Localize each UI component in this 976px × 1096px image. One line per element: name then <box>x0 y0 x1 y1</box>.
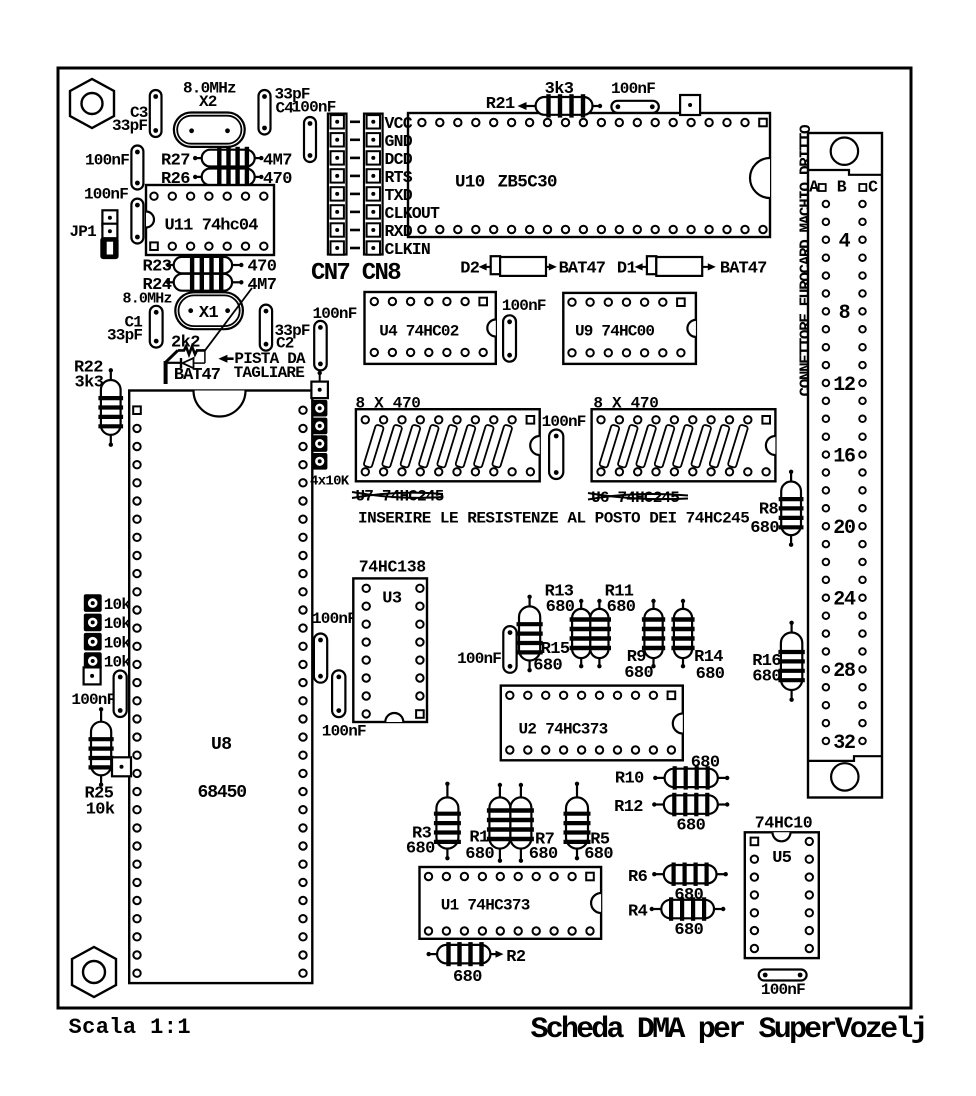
svg-text:R21: R21 <box>486 95 515 114</box>
svg-text:U8: U8 <box>211 735 231 755</box>
svg-text:BAT47: BAT47 <box>174 366 221 385</box>
svg-text:16: 16 <box>833 445 855 468</box>
svg-text:R23: R23 <box>143 258 172 277</box>
svg-text:CN7 CN8: CN7 CN8 <box>311 260 401 287</box>
svg-text:U10: U10 <box>455 173 485 193</box>
svg-text:TAGLIARE: TAGLIARE <box>234 364 305 382</box>
svg-text:D1: D1 <box>617 259 637 278</box>
svg-text:680: 680 <box>607 598 636 617</box>
svg-text:3k3: 3k3 <box>75 374 104 393</box>
svg-text:470: 470 <box>248 258 277 277</box>
svg-text:BAT47: BAT47 <box>559 259 606 278</box>
svg-text:ZB5C30: ZB5C30 <box>498 173 558 193</box>
svg-text:10k: 10k <box>104 654 132 672</box>
svg-text:8: 8 <box>839 302 850 325</box>
svg-text:U3: U3 <box>382 590 402 609</box>
svg-text:100nF: 100nF <box>542 413 586 431</box>
svg-text:GND: GND <box>385 132 413 151</box>
svg-text:20: 20 <box>833 517 855 540</box>
svg-text:100nF: 100nF <box>761 981 805 999</box>
svg-text:RTS: RTS <box>385 168 413 187</box>
svg-text:680: 680 <box>676 817 705 836</box>
svg-text:680: 680 <box>750 519 779 538</box>
svg-text:B: B <box>837 178 847 197</box>
svg-text:28: 28 <box>833 660 855 683</box>
svg-text:INSERIRE LE RESISTENZE AL POST: INSERIRE LE RESISTENZE AL POSTO DEI 74HC… <box>358 510 749 528</box>
svg-text:C: C <box>868 178 878 197</box>
svg-text:X1: X1 <box>199 304 219 323</box>
svg-text:24: 24 <box>833 589 856 612</box>
svg-text:680: 680 <box>465 845 494 864</box>
svg-text:12: 12 <box>833 374 855 397</box>
svg-text:100nF: 100nF <box>611 80 655 98</box>
svg-text:680: 680 <box>453 968 482 987</box>
svg-text:680: 680 <box>696 665 725 684</box>
svg-text:100nF: 100nF <box>84 186 128 204</box>
svg-text:Scheda DMA per SuperVozelj: Scheda DMA per SuperVozelj <box>531 1013 926 1047</box>
svg-text:RXD: RXD <box>385 222 413 241</box>
svg-text:33pF: 33pF <box>112 117 147 135</box>
svg-text:A: A <box>809 178 819 197</box>
svg-text:BAT47: BAT47 <box>720 259 767 278</box>
svg-text:U1 74HC373: U1 74HC373 <box>441 897 530 915</box>
svg-text:R27: R27 <box>161 152 190 171</box>
svg-text:DCD: DCD <box>385 150 413 169</box>
svg-text:U4 74HC02: U4 74HC02 <box>379 323 458 341</box>
svg-text:32: 32 <box>833 732 855 755</box>
svg-text:10k: 10k <box>104 634 132 652</box>
svg-text:Scala 1:1: Scala 1:1 <box>69 1015 191 1040</box>
svg-text:TXD: TXD <box>385 186 413 205</box>
svg-text:680: 680 <box>406 840 435 859</box>
svg-text:680: 680 <box>674 921 703 940</box>
svg-text:10k: 10k <box>104 615 132 633</box>
svg-text:4x10K: 4x10K <box>310 474 350 490</box>
svg-text:100nF: 100nF <box>322 723 366 741</box>
svg-text:100nF: 100nF <box>457 650 501 668</box>
svg-text:680: 680 <box>529 845 558 864</box>
svg-text:680: 680 <box>624 664 653 683</box>
svg-text:68450: 68450 <box>198 783 247 803</box>
svg-text:4M7: 4M7 <box>248 276 277 295</box>
svg-text:680: 680 <box>752 668 781 687</box>
svg-text:74HC10: 74HC10 <box>755 814 813 833</box>
svg-text:100nF: 100nF <box>71 691 115 709</box>
svg-text:4: 4 <box>839 231 851 254</box>
svg-text:U5: U5 <box>772 849 792 868</box>
svg-text:8.0MHz: 8.0MHz <box>123 290 172 307</box>
svg-text:100nF: 100nF <box>312 610 356 628</box>
svg-text:680: 680 <box>546 598 575 617</box>
svg-text:R8: R8 <box>759 501 779 520</box>
svg-text:10k: 10k <box>86 801 115 820</box>
svg-text:R4: R4 <box>628 903 648 922</box>
svg-text:100nF: 100nF <box>85 152 129 170</box>
svg-text:R2: R2 <box>506 948 526 967</box>
svg-text:CLKOUT: CLKOUT <box>385 204 441 223</box>
svg-text:4M7: 4M7 <box>263 152 292 171</box>
svg-text:JP1: JP1 <box>70 223 97 241</box>
svg-text:CLKIN: CLKIN <box>385 240 431 259</box>
svg-text:R6: R6 <box>628 868 648 887</box>
svg-text:100nF: 100nF <box>502 297 546 315</box>
svg-text:R12: R12 <box>614 798 643 817</box>
svg-text:U9 74HC00: U9 74HC00 <box>575 323 654 341</box>
svg-text:R10: R10 <box>615 770 644 789</box>
svg-text:10k: 10k <box>104 596 132 614</box>
svg-text:74HC138: 74HC138 <box>359 558 427 577</box>
svg-text:33pF: 33pF <box>107 327 142 345</box>
svg-text:X2: X2 <box>199 93 217 111</box>
svg-text:680: 680 <box>584 845 613 864</box>
svg-text:D2: D2 <box>460 259 480 278</box>
svg-text:U2 74HC373: U2 74HC373 <box>519 721 608 739</box>
svg-text:U11 74hc04: U11 74hc04 <box>165 217 259 236</box>
svg-text:680: 680 <box>533 657 562 676</box>
svg-text:VCC: VCC <box>385 114 413 133</box>
